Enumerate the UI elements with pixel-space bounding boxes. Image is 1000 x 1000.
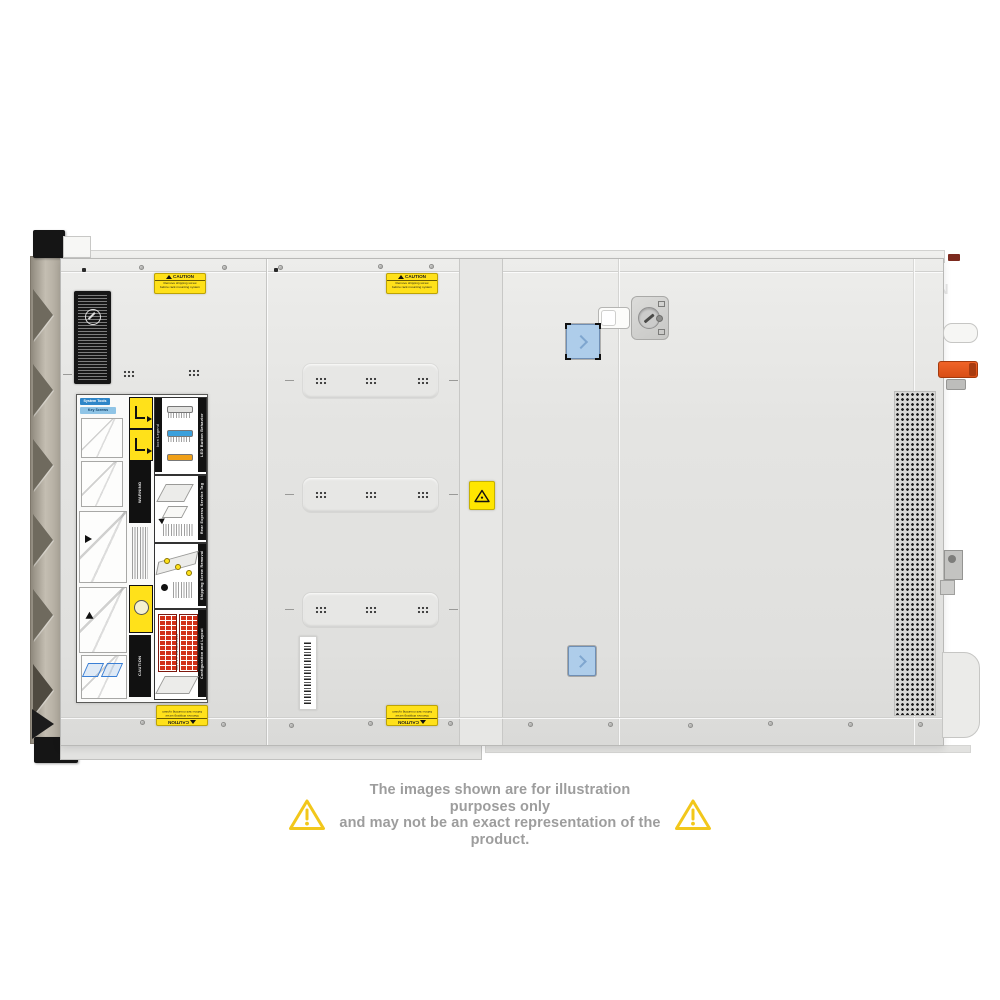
screw	[378, 264, 383, 269]
caution-pictogram	[129, 585, 153, 633]
regulatory-label	[74, 291, 111, 384]
warning-triangle-icon	[166, 275, 172, 279]
corner-mark	[595, 354, 601, 360]
keylock	[631, 296, 669, 340]
bottom-rail	[60, 745, 482, 760]
panel-mark	[449, 494, 458, 495]
pointer-icon	[407, 725, 417, 726]
step-number-badge	[161, 584, 168, 591]
bezel-notch	[33, 664, 53, 716]
fine-print	[168, 413, 190, 418]
rail-sketch	[156, 551, 199, 575]
screw	[848, 722, 853, 727]
psu-handle	[942, 652, 980, 738]
vent-dots	[315, 606, 327, 614]
shipping-screw-header: Shipping Screw Removal	[198, 544, 206, 606]
vent-dots	[188, 369, 200, 377]
screw	[221, 722, 226, 727]
disclaimer-line2: and may not be an exact representation o…	[336, 815, 664, 848]
tag-sketch	[162, 506, 188, 518]
screw	[139, 265, 144, 270]
pointer-icon	[407, 273, 417, 274]
instruction-diagram	[79, 511, 127, 583]
bay-caption: Bay 2 3.5" x12 Hard Drives	[196, 616, 200, 670]
fine-print	[168, 437, 190, 442]
warning-triangle-icon	[288, 798, 326, 832]
service-tag-header: Rear Express Service Tag	[198, 476, 206, 540]
screw	[528, 722, 533, 727]
rear-service-tag-label: Rear Express Service Tag	[154, 475, 207, 543]
lock-pin	[656, 315, 663, 322]
cover-release-button	[568, 646, 596, 676]
arrow-icon	[85, 535, 92, 543]
led-bar-amber	[167, 454, 193, 461]
fine-print	[132, 527, 148, 579]
fine-print	[78, 295, 107, 380]
unlock-icon	[658, 301, 665, 307]
led-bar-blue	[167, 430, 193, 437]
warning-triangle-icon	[398, 275, 404, 279]
warning-sticker	[469, 481, 495, 510]
panel-mark	[285, 380, 294, 381]
cover-recess	[303, 593, 438, 627]
caution-label: CAUTION Remove shipping screw before rac…	[154, 273, 206, 294]
bezel-notch	[33, 439, 53, 491]
bezel-notch	[33, 589, 53, 641]
caution-text: Remove shipping screw	[159, 714, 205, 718]
vent-dots	[365, 606, 377, 614]
screw	[222, 265, 227, 270]
warning-triangle-icon	[420, 720, 426, 724]
disclaimer: The images shown are for illustration pu…	[288, 782, 712, 848]
warning-triangle-icon	[474, 489, 490, 503]
warning-pictogram	[129, 397, 153, 429]
rear-clip-small	[940, 580, 955, 595]
lock-icon	[658, 329, 665, 335]
bezel-notch	[33, 289, 53, 341]
disclaimer-text: The images shown are for illustration pu…	[336, 782, 664, 848]
warning-pictogram	[129, 429, 153, 461]
screw-marker	[175, 564, 181, 570]
server-sketch	[156, 484, 194, 502]
panel-mark	[63, 374, 72, 375]
warning-strip: WARNING	[129, 461, 151, 523]
cover-recess	[303, 478, 438, 512]
system-tools-chip: System Tools	[80, 398, 110, 405]
caution-title: CAUTION	[173, 274, 194, 280]
screw-marker	[186, 570, 192, 576]
panel-mark	[449, 609, 458, 610]
cover-recess	[303, 364, 438, 398]
rear-corner-mark	[948, 254, 960, 261]
caution-text: before rack mounting system	[157, 286, 203, 290]
front-bezel	[30, 256, 64, 744]
panel-mark	[285, 494, 294, 495]
screw	[768, 721, 773, 726]
caution-strip: CAUTION	[129, 635, 151, 697]
screw	[429, 264, 434, 269]
led-behavior-header: LED Button Behavior	[198, 398, 206, 472]
bay-caption: Bay 1 3.5" x12 Hard Drives	[175, 616, 179, 670]
screw	[278, 265, 283, 270]
instruction-diagram	[79, 587, 127, 653]
rear-handle-orange	[938, 361, 978, 378]
vent-dots	[123, 370, 135, 378]
cover-seam	[618, 259, 619, 745]
configuration-layout-label: Configuration and Layout Bay 1 3.5" x12 …	[154, 609, 207, 700]
vent-grid	[894, 391, 936, 716]
chevron-right-icon	[574, 335, 588, 349]
caution-title: CAUTION	[405, 274, 426, 280]
rack-ear-top	[33, 230, 65, 258]
instruction-diagram	[81, 461, 123, 507]
product-photo-page: COMPAN COMPAN COMPAN COMPAN COMPAN COMPA…	[0, 0, 1000, 1000]
rivet	[82, 268, 86, 272]
pointer-icon	[177, 725, 187, 726]
server-sketch	[155, 676, 199, 694]
cover-release-button	[566, 324, 600, 359]
fine-print	[173, 582, 193, 598]
cover-latch-slider	[598, 307, 630, 329]
rear-knob	[943, 323, 978, 343]
caution-text: before rack mounting system	[389, 286, 435, 290]
vent-dots	[417, 491, 429, 499]
caution-text: Remove shipping screw	[389, 714, 435, 718]
warning-triangle-icon	[190, 720, 196, 724]
top-cover: CAUTION Remove shipping screw before rac…	[60, 258, 944, 746]
instruction-diagram	[81, 655, 127, 699]
screw	[448, 721, 453, 726]
panel-mark	[449, 380, 458, 381]
led-button-behavior-label: Icon Legend LED Button Behavior	[154, 397, 207, 475]
screw	[688, 723, 693, 728]
icon-legend-header: Icon Legend	[155, 398, 162, 472]
screw	[918, 722, 923, 727]
service-label-panel: System Tools Key Screws Identifier WARNI…	[76, 394, 208, 703]
key-screws-chip: Key Screws Identifier	[80, 407, 116, 414]
vent-dots	[315, 377, 327, 385]
vent-dots	[365, 491, 377, 499]
screw	[289, 723, 294, 728]
screw	[368, 721, 373, 726]
rack-ear-top-step	[63, 236, 91, 258]
chevron-right-icon	[574, 655, 587, 668]
bezel-notch	[33, 514, 53, 566]
bottom-rail	[485, 745, 971, 753]
warning-triangle-icon	[674, 798, 712, 832]
shipping-screw-label: Shipping Screw Removal	[154, 543, 207, 609]
rear-latch-small	[946, 379, 966, 390]
caution-text: before rack mounting system	[159, 709, 205, 713]
corner-mark	[595, 323, 601, 329]
regulatory-symbol-icon	[85, 309, 101, 325]
panel-mark	[285, 609, 294, 610]
barcode-label	[299, 636, 317, 710]
caution-label: CAUTION Remove shipping screw before rac…	[156, 705, 208, 726]
rivet	[274, 268, 278, 272]
screw	[140, 720, 145, 725]
barcode-icon	[304, 642, 311, 704]
vent-dots	[315, 491, 327, 499]
screw	[608, 722, 613, 727]
vent-dots	[365, 377, 377, 385]
corner-mark	[565, 323, 571, 329]
disclaimer-line1: The images shown are for illustration pu…	[336, 782, 664, 815]
corner-mark	[565, 354, 571, 360]
bezel-notch	[33, 364, 53, 416]
caution-label: CAUTION Remove shipping screw before rac…	[386, 705, 438, 726]
rear-clip	[944, 550, 963, 580]
fine-print	[163, 524, 193, 536]
vent-dots	[417, 377, 429, 385]
cover-seam	[266, 259, 267, 745]
caution-label: CAUTION Remove shipping screw before rac…	[386, 273, 438, 294]
led-bar-gray	[167, 406, 193, 413]
server-top-view-photo: CAUTION Remove shipping screw before rac…	[30, 228, 975, 768]
instruction-diagram	[81, 418, 123, 458]
pointer-icon	[175, 273, 185, 274]
caution-text: before rack mounting system	[389, 709, 435, 713]
screw-marker	[164, 558, 170, 564]
vent-dots	[417, 606, 429, 614]
